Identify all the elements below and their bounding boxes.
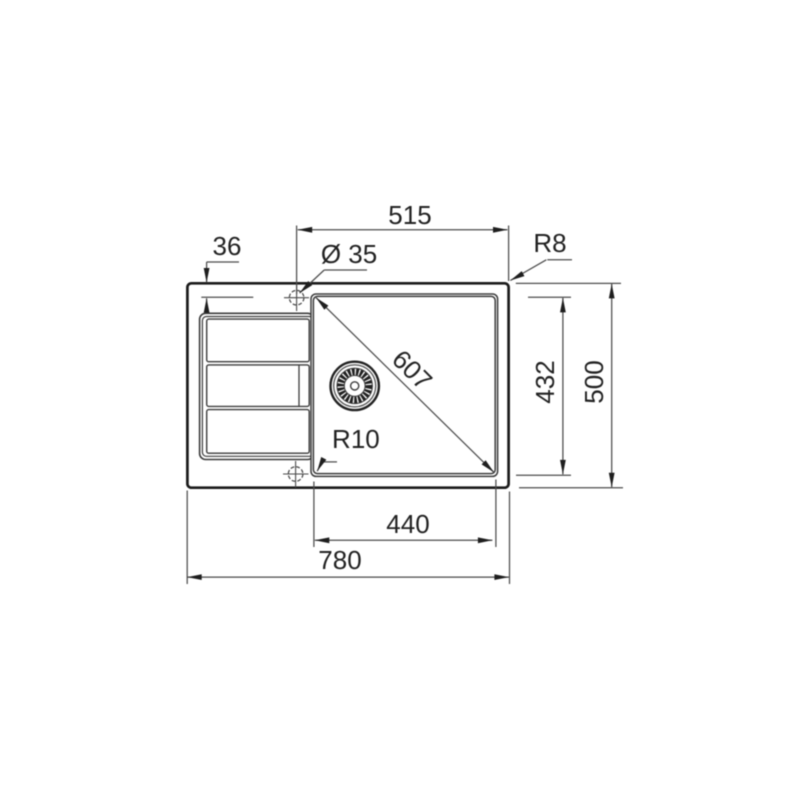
svg-text:Ø 35: Ø 35 <box>321 239 377 269</box>
svg-text:36: 36 <box>213 231 242 261</box>
svg-text:780: 780 <box>318 545 361 575</box>
svg-text:500: 500 <box>579 360 609 403</box>
svg-text:432: 432 <box>530 360 560 403</box>
svg-text:515: 515 <box>388 200 431 230</box>
svg-text:R10: R10 <box>332 424 380 454</box>
svg-text:R8: R8 <box>533 228 566 258</box>
svg-text:440: 440 <box>386 509 429 539</box>
